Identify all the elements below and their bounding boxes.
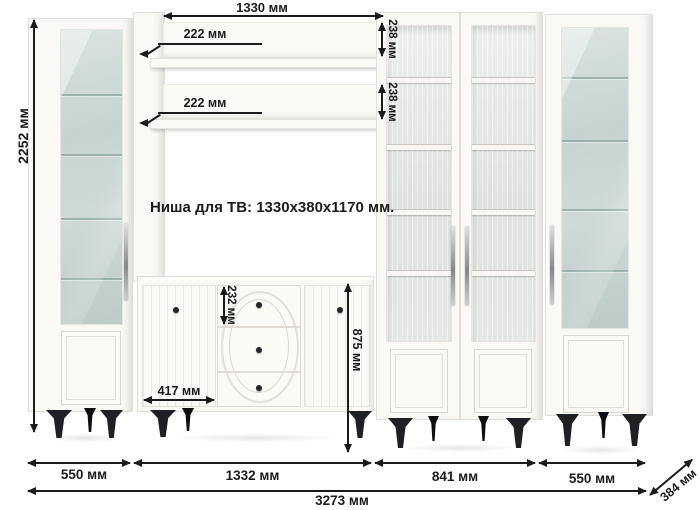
dim-line-shelf-back-2 [381,85,383,119]
dim-arrowhead [139,119,148,127]
double-cabinet-left-glass [386,25,452,342]
tv-niche-label: Ниша для ТВ: 1330x380x1170 мм. [150,199,382,216]
dim-label-niche-width: 1330 мм [207,0,317,15]
wall-shelf-board-1 [150,58,387,68]
dim-label-double-cabinet-width: 841 мм [409,469,501,484]
dim-line-niche-width [164,15,383,17]
dim-label-shelf-back-2: 238 мм [386,79,398,125]
dim-label-right-cabinet-width: 550 мм [546,471,638,486]
dim-label-tv-section-width: 1332 мм [200,468,305,483]
dim-label-height-total: 2252 мм [15,101,31,171]
left-cabinet-glass-door [60,29,123,325]
dim-label-shelf-back-1: 238 мм [386,16,398,62]
double-display-cabinet [376,12,543,420]
white-shelf [472,144,535,150]
door-knob [173,307,179,313]
dim-line-tv-section-width [134,462,371,464]
white-shelf [387,209,451,215]
floor-shadow [30,432,142,444]
dim-line-shelf-back-1 [381,23,383,56]
dim-label-stand-door-width: 417 мм [134,384,224,398]
right-cabinet-glass-door [561,27,629,329]
floor-shadow [140,432,372,444]
dim-label-stand-height: 875 мм [350,319,364,381]
drawer-3 [217,372,301,407]
dim-label-shelf-depth-1: 222 мм [155,27,255,41]
left-cabinet-lower-panel [61,331,121,405]
dim-line-double-cabinet-width [375,462,535,464]
right-cabinet-handle [550,225,554,305]
cabinet-leg [622,414,647,446]
cabinet-leg [598,412,609,438]
dim-arrowhead [139,50,148,58]
left-display-cabinet [28,18,133,412]
fluted-glass-texture [472,26,535,341]
dim-label-total-width: 3273 мм [292,493,392,508]
double-cabinet-lower-panel-right [474,349,532,413]
dim-label-shelf-depth-2: 222 мм [155,96,255,110]
dim-line-right-cabinet-width [539,462,645,464]
drawer-2 [217,327,301,372]
cabinet-leg [556,414,579,446]
wall-shelf-board-2 [150,119,387,129]
left-cabinet-handle [124,223,128,301]
dim-label-left-cabinet-width: 550 мм [39,467,129,482]
floor-shadow [546,444,654,456]
dim-line-height-total [33,20,35,432]
dim-line-stand-door-width [144,399,214,401]
double-cabinet-right-glass [471,25,536,342]
right-display-cabinet [545,14,653,416]
drawer-knob [256,347,262,353]
double-cabinet-lower-panel-left [390,349,448,413]
dim-label-drawer-height: 232 мм [225,282,237,328]
cabinet-divider [459,13,461,419]
double-cabinet-handle-left [451,226,455,306]
door-knob [337,307,343,313]
drawer-knob [256,302,262,308]
double-cabinet-handle-right [465,226,469,306]
furniture-dimension-diagram: Ниша для ТВ: 1330x380x1170 мм. 2252 мм 1… [0,0,700,510]
dim-leader-shelf-depth-1 [158,43,262,45]
dim-line-total-width [28,490,646,492]
white-shelf [387,270,451,276]
white-shelf [472,209,535,215]
white-shelf [472,270,535,276]
right-cabinet-lower-panel [563,335,629,413]
glass-reflection [61,30,122,324]
dim-line-stand-height [347,284,349,452]
white-shelf [387,144,451,150]
dim-leader-shelf-depth-2 [158,112,262,114]
glass-reflection [562,28,628,328]
drawer-knob [256,385,262,391]
fluted-glass-texture [387,26,451,341]
white-shelf [472,77,535,83]
dim-line-left-cabinet-width [28,462,130,464]
